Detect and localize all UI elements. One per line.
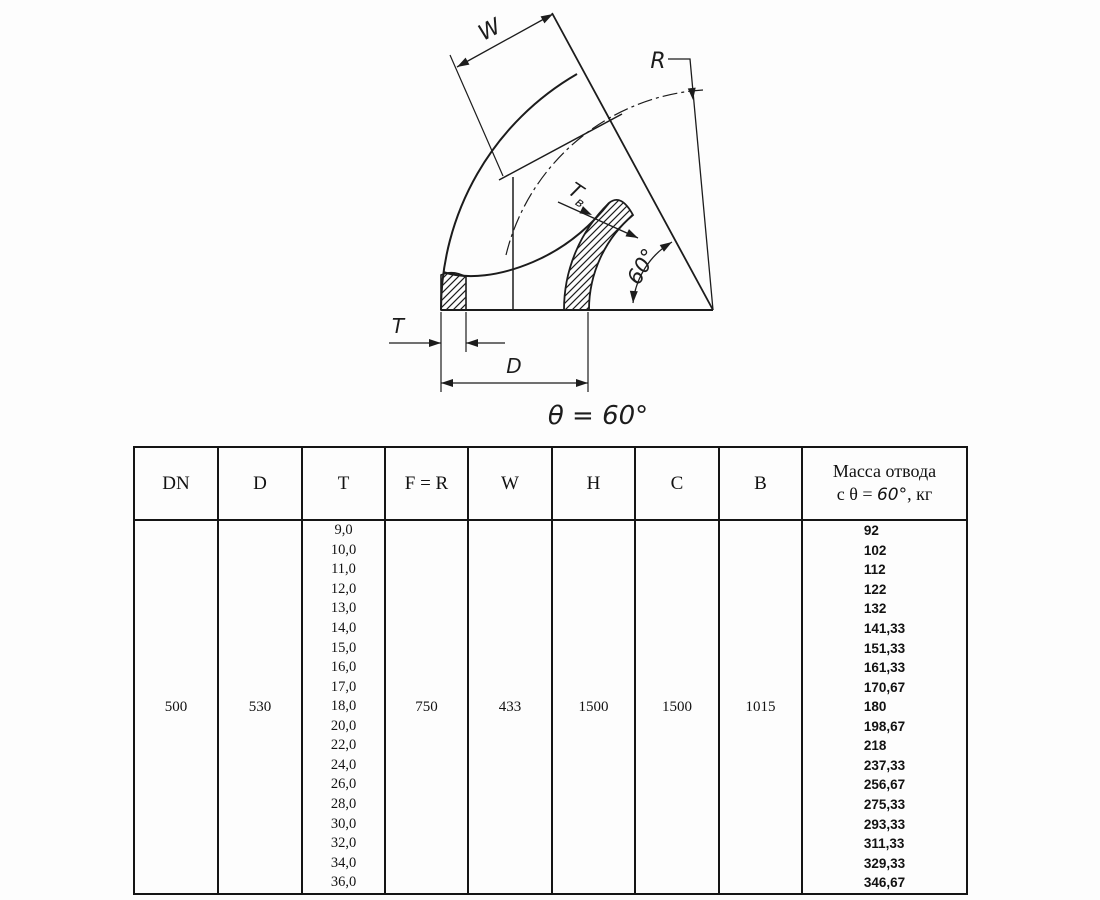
mass-value: 102 — [864, 541, 905, 561]
cell-fr: 750 — [385, 520, 468, 894]
radius-r-leader — [668, 59, 713, 310]
wall-thickness-value: 24,0 — [303, 756, 384, 776]
cell-w: 433 — [468, 520, 552, 894]
dimension-w-label: W — [474, 14, 506, 47]
elbow-technical-drawing: T D W R 60° Tв θ = 60° — [0, 0, 1100, 446]
mass-value: 256,67 — [864, 775, 905, 795]
header-w: W — [468, 447, 552, 520]
mass-value: 112 — [864, 560, 905, 580]
arrowhead — [455, 58, 469, 71]
arrowhead — [466, 339, 478, 347]
header-mass: Масса отвода с θ = 60°, кг — [802, 447, 967, 520]
dimension-table: DN D T F = R W H C B Масса отвода с θ = … — [133, 446, 968, 895]
arrowhead — [629, 291, 638, 304]
cell-d: 530 — [218, 520, 302, 894]
wall-thickness-value: 10,0 — [303, 541, 384, 561]
mass-value: 132 — [864, 599, 905, 619]
top-face-edge — [499, 114, 622, 180]
header-b: B — [719, 447, 802, 520]
header-c: C — [635, 447, 719, 520]
mass-value: 346,67 — [864, 873, 905, 893]
wall-thickness-value: 22,0 — [303, 736, 384, 756]
page: T D W R 60° Tв θ = 60° — [0, 0, 1100, 900]
arrowhead — [541, 11, 555, 24]
header-h: H — [552, 447, 635, 520]
cell-b: 1015 — [719, 520, 802, 894]
wall-thickness-value: 34,0 — [303, 854, 384, 874]
header-mass-line1: Масса отвода — [803, 460, 966, 483]
cell-dn: 500 — [134, 520, 218, 894]
wall-thickness-value: 15,0 — [303, 639, 384, 659]
mass-value: 218 — [864, 736, 905, 756]
arrowhead — [625, 229, 639, 241]
mass-value: 198,67 — [864, 717, 905, 737]
cell-c: 1500 — [635, 520, 719, 894]
mass-value: 161,33 — [864, 658, 905, 678]
cell-t-values: 9,010,011,012,013,014,015,016,017,018,02… — [302, 520, 385, 894]
wall-thickness-value: 36,0 — [303, 873, 384, 893]
wall-thickness-value: 32,0 — [303, 834, 384, 854]
header-mass-line2: с θ = 60°, кг — [803, 483, 966, 507]
mass-value: 311,33 — [864, 834, 905, 854]
radius-r-label: R — [650, 49, 665, 74]
t-values-list: 9,010,011,012,013,014,015,016,017,018,02… — [303, 521, 384, 892]
wall-thickness-value: 11,0 — [303, 560, 384, 580]
mass-value: 293,33 — [864, 815, 905, 835]
table-header-row: DN D T F = R W H C B Масса отвода с θ = … — [134, 447, 967, 520]
header-d: D — [218, 447, 302, 520]
mass-value: 329,33 — [864, 854, 905, 874]
mass-value: 141,33 — [864, 619, 905, 639]
arrowhead — [441, 379, 453, 387]
mass-value: 275,33 — [864, 795, 905, 815]
header-fr: F = R — [385, 447, 468, 520]
wall-thickness-value: 18,0 — [303, 697, 384, 717]
mass-value: 122 — [864, 580, 905, 600]
wall-thickness-value: 13,0 — [303, 599, 384, 619]
mass-value: 151,33 — [864, 639, 905, 659]
arrowhead — [688, 88, 697, 101]
wall-thickness-value: 9,0 — [303, 521, 384, 541]
mass-value: 92 — [864, 521, 905, 541]
table-body-row: 500 530 9,010,011,012,013,014,015,016,01… — [134, 520, 967, 894]
wall-thickness-value: 26,0 — [303, 775, 384, 795]
wall-thickness-value: 12,0 — [303, 580, 384, 600]
dimension-d-label: D — [506, 354, 521, 378]
header-dn: DN — [134, 447, 218, 520]
wall-thickness-value: 28,0 — [303, 795, 384, 815]
mass-value: 237,33 — [864, 756, 905, 776]
extension-line-w — [450, 55, 503, 176]
angle-value-label: 60° — [622, 244, 661, 288]
wall-thickness-value: 16,0 — [303, 658, 384, 678]
mass-value: 170,67 — [864, 678, 905, 698]
wall-thickness-value: 20,0 — [303, 717, 384, 737]
inner-wall-section-hatch — [564, 200, 633, 310]
mass-value: 180 — [864, 697, 905, 717]
dimension-t-label: T — [392, 314, 406, 338]
drawing-caption-theta: θ = 60° — [548, 401, 648, 431]
wall-thickness-value: 14,0 — [303, 619, 384, 639]
arrowhead — [429, 339, 441, 347]
wall-thickness-value: 17,0 — [303, 678, 384, 698]
arrowhead — [576, 379, 588, 387]
left-wall-section-hatch — [441, 273, 466, 310]
mass-values-list: 92102112122132141,33151,33161,33170,6718… — [864, 521, 905, 892]
dimension-w-line — [457, 14, 553, 67]
cell-h: 1500 — [552, 520, 635, 894]
header-t: T — [302, 447, 385, 520]
wall-thickness-value: 30,0 — [303, 815, 384, 835]
cell-mass-values: 92102112122132141,33151,33161,33170,6718… — [802, 520, 967, 894]
